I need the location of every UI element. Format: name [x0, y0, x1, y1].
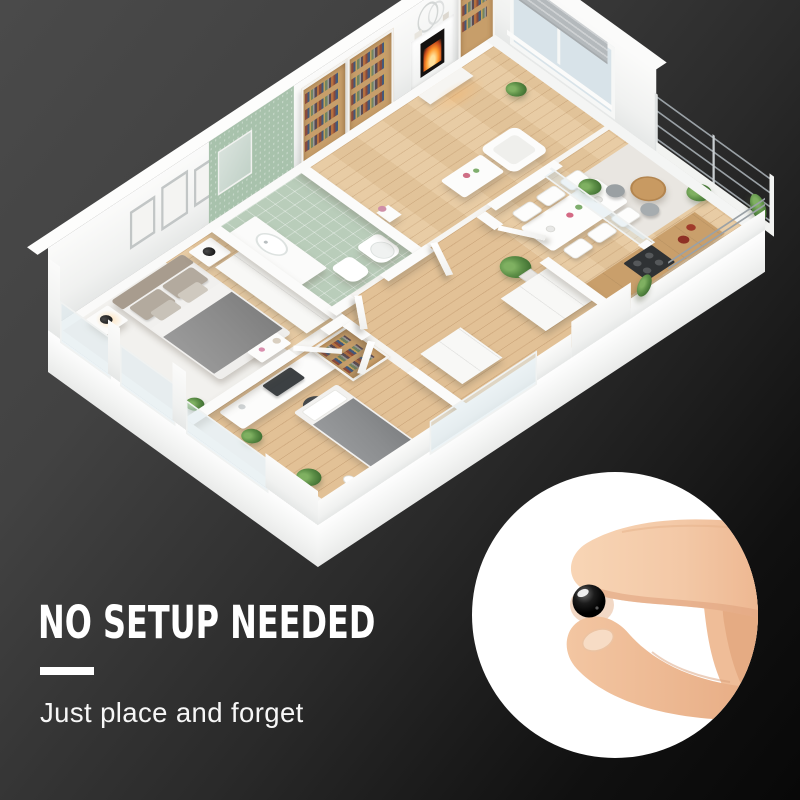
mini-device-ball	[573, 585, 606, 618]
hand-holding-device-image	[472, 472, 758, 758]
front-pier	[48, 258, 60, 339]
headline: NO SETUP NEEDED	[38, 596, 375, 649]
product-photo-circle	[472, 472, 758, 758]
subheadline: Just place and forget	[40, 697, 304, 729]
front-pier	[173, 362, 187, 430]
headline-divider	[40, 667, 94, 675]
ball-glint	[595, 606, 598, 609]
front-pier	[108, 319, 120, 382]
